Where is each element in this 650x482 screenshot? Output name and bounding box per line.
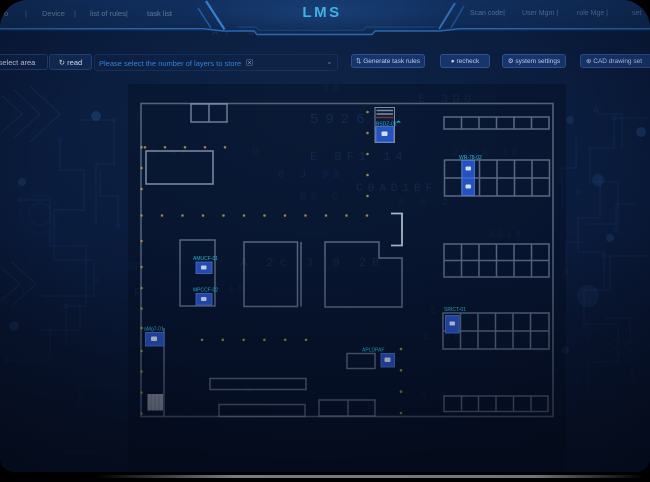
svg-text:SRICT-01: SRICT-01 bbox=[444, 307, 466, 313]
svg-text:aMg7-01: aMg7-01 bbox=[144, 327, 164, 333]
svg-text:AMUCF-01: AMUCF-01 bbox=[193, 256, 218, 262]
svg-text:MPCCF-02: MPCCF-02 bbox=[193, 288, 218, 294]
svg-text:WR-78-02: WR-78-02 bbox=[459, 155, 482, 161]
svg-text:APLDPAF: APLDPAF bbox=[362, 348, 384, 354]
